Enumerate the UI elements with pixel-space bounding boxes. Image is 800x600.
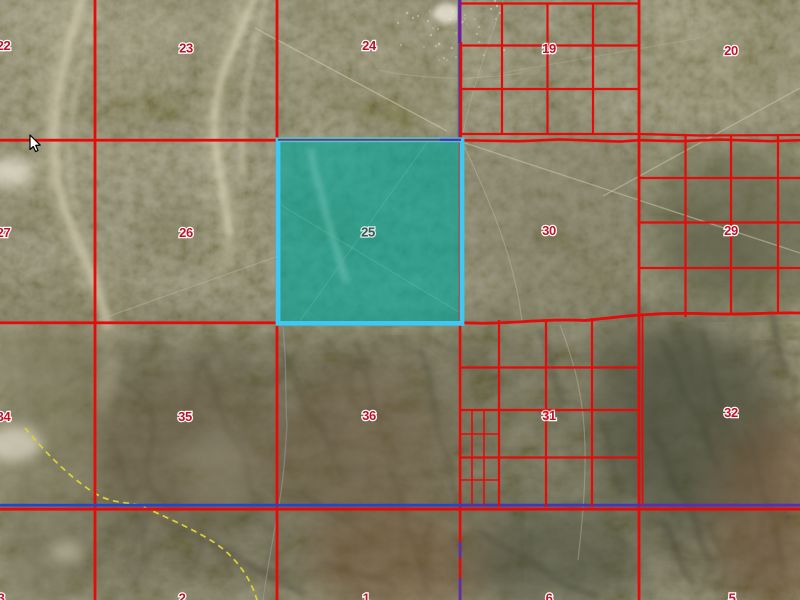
svg-text:36: 36	[362, 408, 376, 423]
svg-text:29: 29	[724, 223, 738, 238]
svg-text:32: 32	[724, 405, 738, 420]
svg-text:35: 35	[178, 409, 192, 424]
svg-text:24: 24	[362, 38, 377, 53]
svg-text:27: 27	[0, 225, 10, 240]
svg-text:26: 26	[179, 225, 193, 240]
svg-text:6: 6	[546, 591, 553, 600]
svg-text:1: 1	[363, 591, 370, 600]
svg-text:2: 2	[179, 591, 186, 600]
svg-text:22: 22	[0, 38, 10, 53]
svg-text:20: 20	[724, 43, 738, 58]
svg-text:30: 30	[542, 223, 556, 238]
svg-text:23: 23	[179, 41, 193, 56]
svg-text:25: 25	[361, 225, 375, 240]
svg-text:3: 3	[0, 591, 5, 600]
svg-text:19: 19	[542, 41, 556, 56]
svg-text:34: 34	[0, 409, 11, 424]
svg-text:5: 5	[729, 591, 736, 600]
